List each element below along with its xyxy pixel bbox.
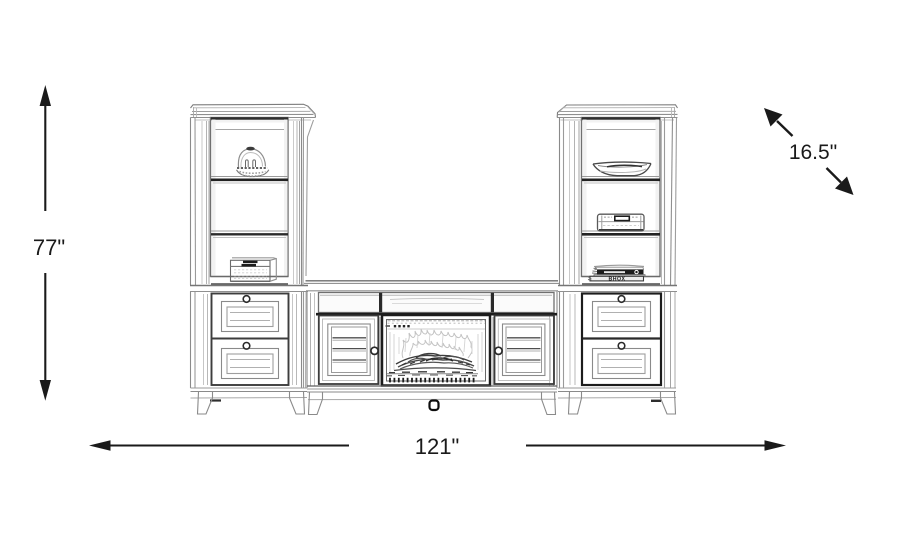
svg-text:77": 77" bbox=[33, 235, 65, 260]
svg-text:BHOX: BHOX bbox=[609, 276, 626, 282]
svg-text:121": 121" bbox=[415, 434, 460, 459]
svg-text:16.5": 16.5" bbox=[789, 141, 837, 164]
